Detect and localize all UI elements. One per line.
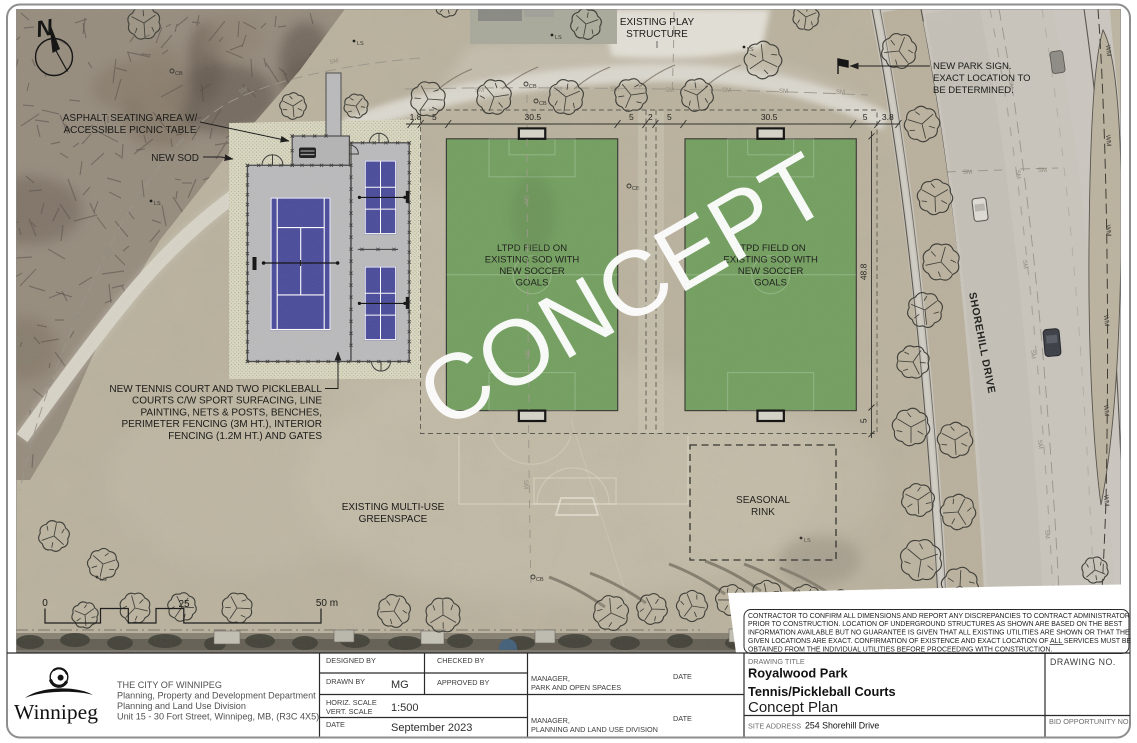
svg-text:Tennis/Pickleball Courts: Tennis/Pickleball Courts — [748, 684, 896, 699]
svg-text:DESIGNED BY: DESIGNED BY — [326, 656, 376, 665]
svg-text:THE CITY OF WINNIPEG: THE CITY OF WINNIPEG — [117, 680, 222, 690]
svg-text:VERT. SCALE: VERT. SCALE — [326, 707, 373, 716]
svg-text:HORIZ. SCALE: HORIZ. SCALE — [326, 698, 377, 707]
svg-text:DATE: DATE — [673, 714, 692, 723]
svg-text:Planning and Land Use Division: Planning and Land Use Division — [117, 701, 246, 711]
svg-text:APPROVED BY: APPROVED BY — [437, 678, 489, 687]
svg-text:PARK AND OPEN SPACES: PARK AND OPEN SPACES — [531, 683, 621, 692]
svg-text:MG: MG — [391, 679, 409, 691]
svg-text:Unit 15 - 30 Fort Street, Winn: Unit 15 - 30 Fort Street, Winnipeg, MB, … — [117, 712, 319, 722]
svg-text:INFORMATION AVAILABLE BUT NO G: INFORMATION AVAILABLE BUT NO GUARANTEE I… — [748, 630, 1130, 637]
svg-text:Winnipeg: Winnipeg — [14, 700, 98, 724]
svg-text:MANAGER,: MANAGER, — [531, 716, 570, 725]
svg-text:DATE: DATE — [326, 720, 345, 729]
svg-text:PRIOR TO CONSTRUCTION. LOCATIO: PRIOR TO CONSTRUCTION. LOCATION OF UNDER… — [748, 621, 1123, 628]
svg-text:CONTRACTOR TO CONFIRM ALL DIME: CONTRACTOR TO CONFIRM ALL DIMENSIONS AND… — [748, 613, 1130, 620]
svg-text:MANAGER,: MANAGER, — [531, 674, 570, 683]
svg-text:BID OPPORTUNITY NO.: BID OPPORTUNITY NO. — [1049, 717, 1131, 726]
svg-text:CHECKED BY: CHECKED BY — [437, 656, 485, 665]
svg-text:Concept Plan: Concept Plan — [748, 699, 838, 716]
svg-text:PLANNING AND LAND USE DIVISION: PLANNING AND LAND USE DIVISION — [531, 725, 658, 734]
svg-text:DRAWING NO.: DRAWING NO. — [1050, 657, 1116, 667]
svg-text:1:500: 1:500 — [391, 702, 419, 714]
svg-text:Planning, Property and Develop: Planning, Property and Development Depar… — [117, 691, 316, 701]
svg-text:254 Shorehill Drive: 254 Shorehill Drive — [805, 721, 879, 731]
svg-text:GIVEN LOCATIONS ARE EXACT. CON: GIVEN LOCATIONS ARE EXACT. CONFIRMATION … — [748, 638, 1131, 645]
svg-text:SITE ADDRESS: SITE ADDRESS — [748, 722, 801, 731]
svg-text:DRAWN BY: DRAWN BY — [326, 677, 365, 686]
svg-text:September 2023: September 2023 — [391, 722, 472, 734]
svg-text:Royalwood Park: Royalwood Park — [748, 666, 848, 681]
svg-text:DATE: DATE — [673, 672, 692, 681]
svg-text:OBTAINED FROM THE INDIVIDUAL U: OBTAINED FROM THE INDIVIDUAL UTILITIES B… — [748, 646, 1052, 653]
